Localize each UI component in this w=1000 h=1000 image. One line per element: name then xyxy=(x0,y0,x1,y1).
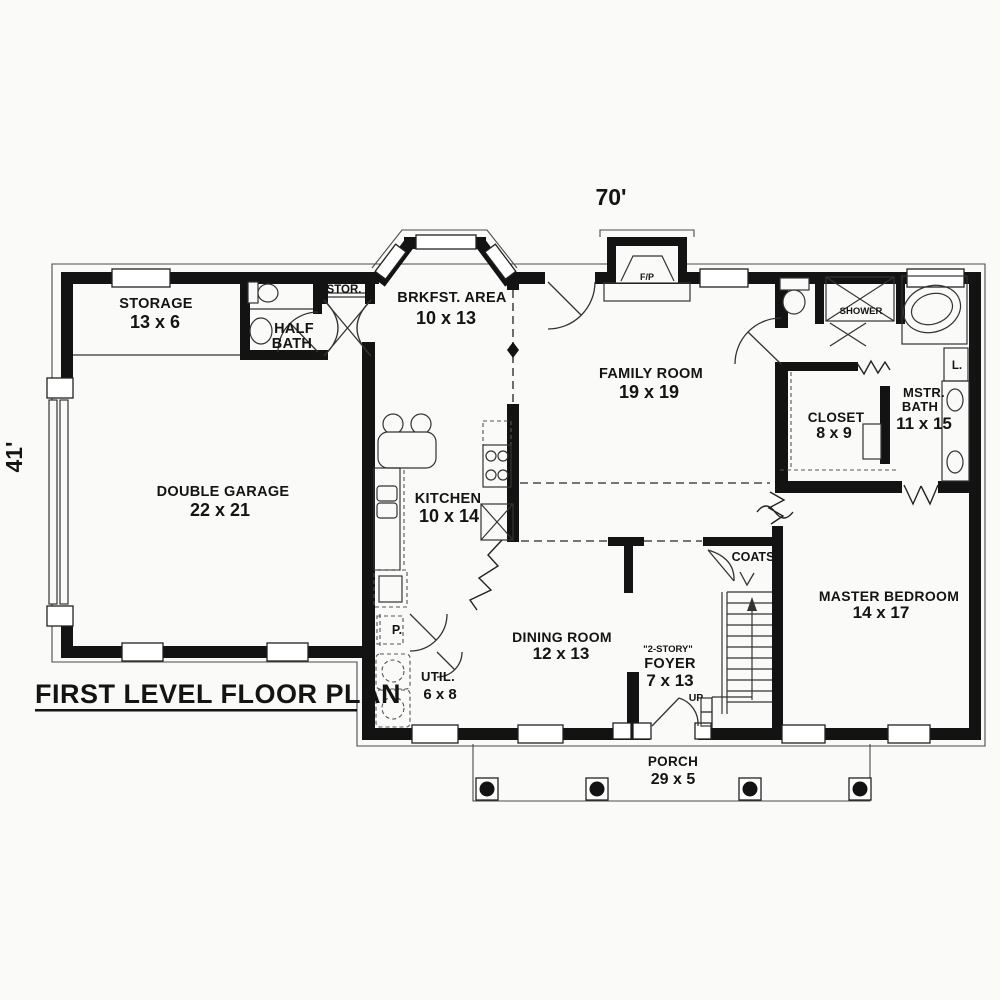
room-kitchen: KITCHEN 10 x 14 xyxy=(415,491,482,526)
room-size: 11 x 15 xyxy=(896,414,952,433)
room-closet: CLOSET 8 x 9 xyxy=(808,410,865,442)
kitchen-counter xyxy=(374,468,404,570)
stairs xyxy=(701,592,772,728)
breakfast-table-icon xyxy=(378,414,436,468)
room-master-bedroom: MASTER BEDROOM 14 x 17 xyxy=(819,588,959,622)
room-label: UTIL. xyxy=(421,669,455,684)
stairs-up-label: UP xyxy=(689,692,704,704)
room-storage: STORAGE 13 x 6 xyxy=(119,296,193,332)
room-label: KITCHEN xyxy=(415,491,482,507)
room-size: 29 x 5 xyxy=(651,771,696,788)
room-stor-closet: STOR. xyxy=(327,284,362,296)
room-size: 7 x 13 xyxy=(646,671,693,690)
room-label: DINING ROOM xyxy=(512,629,612,645)
room-size: 10 x 13 xyxy=(416,308,476,328)
porch-column-icon xyxy=(739,778,761,800)
refrigerator-icon xyxy=(374,570,407,607)
floor-plan-canvas: 70' 41' STORAGE 13 x 6 HALF BATH STOR. B… xyxy=(0,0,1000,1000)
room-utility: UTIL. 6 x 8 xyxy=(421,669,457,703)
toilet-icon xyxy=(248,282,278,303)
room-family: FAMILY ROOM 19 x 19 xyxy=(599,366,703,402)
room-foyer: "2-STORY" FOYER 7 x 13 xyxy=(643,644,696,690)
fireplace xyxy=(604,237,690,301)
linen-label: L. xyxy=(952,360,962,372)
plan-title-text: FIRST LEVEL FLOOR PLAN xyxy=(35,679,401,709)
room-label: BATH xyxy=(272,336,312,352)
porch-column-icon xyxy=(476,778,498,800)
dim-width: 70' xyxy=(595,184,626,210)
room-label: MSTR. xyxy=(903,385,945,400)
room-label: PORCH xyxy=(648,754,698,769)
range-icon xyxy=(483,421,511,487)
room-porch: PORCH 29 x 5 xyxy=(648,754,698,788)
room-master-bath: MSTR. BATH 11 x 15 xyxy=(896,385,952,433)
room-size: 13 x 6 xyxy=(130,312,180,332)
room-label: MASTER BEDROOM xyxy=(819,588,959,604)
room-label: FOYER xyxy=(644,656,696,672)
porch-column-icon xyxy=(586,778,608,800)
shower-label: SHOWER xyxy=(840,306,883,317)
porch-column-icon xyxy=(849,778,871,800)
room-breakfast: BRKFST. AREA 10 x 13 xyxy=(397,290,507,328)
floor-plan-svg: 70' 41' STORAGE 13 x 6 HALF BATH STOR. B… xyxy=(0,0,1000,1000)
room-dining: DINING ROOM 12 x 13 xyxy=(512,629,612,663)
sink-icon xyxy=(250,318,272,344)
room-dividers xyxy=(507,290,770,541)
room-size: 22 x 21 xyxy=(190,500,250,520)
room-label: DOUBLE GARAGE xyxy=(157,484,290,500)
room-half-bath: HALF BATH xyxy=(272,321,314,352)
coats-label: COATS xyxy=(732,550,775,564)
room-label: FAMILY ROOM xyxy=(599,366,703,382)
room-label: STORAGE xyxy=(119,296,193,312)
room-size: 8 x 9 xyxy=(816,425,852,442)
room-size: 10 x 14 xyxy=(419,506,479,526)
room-garage: DOUBLE GARAGE 22 x 21 xyxy=(157,484,290,520)
room-size: 6 x 8 xyxy=(423,686,456,703)
room-label: CLOSET xyxy=(808,410,865,425)
plan-title: FIRST LEVEL FLOOR PLAN xyxy=(35,679,401,712)
room-label: BRKFST. AREA xyxy=(397,290,507,306)
room-size: 14 x 17 xyxy=(853,603,910,622)
toilet-icon xyxy=(780,278,809,314)
room-size: 12 x 13 xyxy=(533,644,590,663)
room-label: HALF xyxy=(274,321,314,337)
porch-outline xyxy=(473,738,870,801)
title-underline xyxy=(35,709,357,712)
fireplace-label: F/P xyxy=(640,272,654,282)
dim-height: 41' xyxy=(1,441,27,472)
room-size: 19 x 19 xyxy=(619,382,679,402)
room-label: "2-STORY" xyxy=(643,644,693,655)
pantry-label: P. xyxy=(392,623,402,637)
room-label: BATH xyxy=(902,399,938,414)
interior-doors xyxy=(278,282,781,677)
